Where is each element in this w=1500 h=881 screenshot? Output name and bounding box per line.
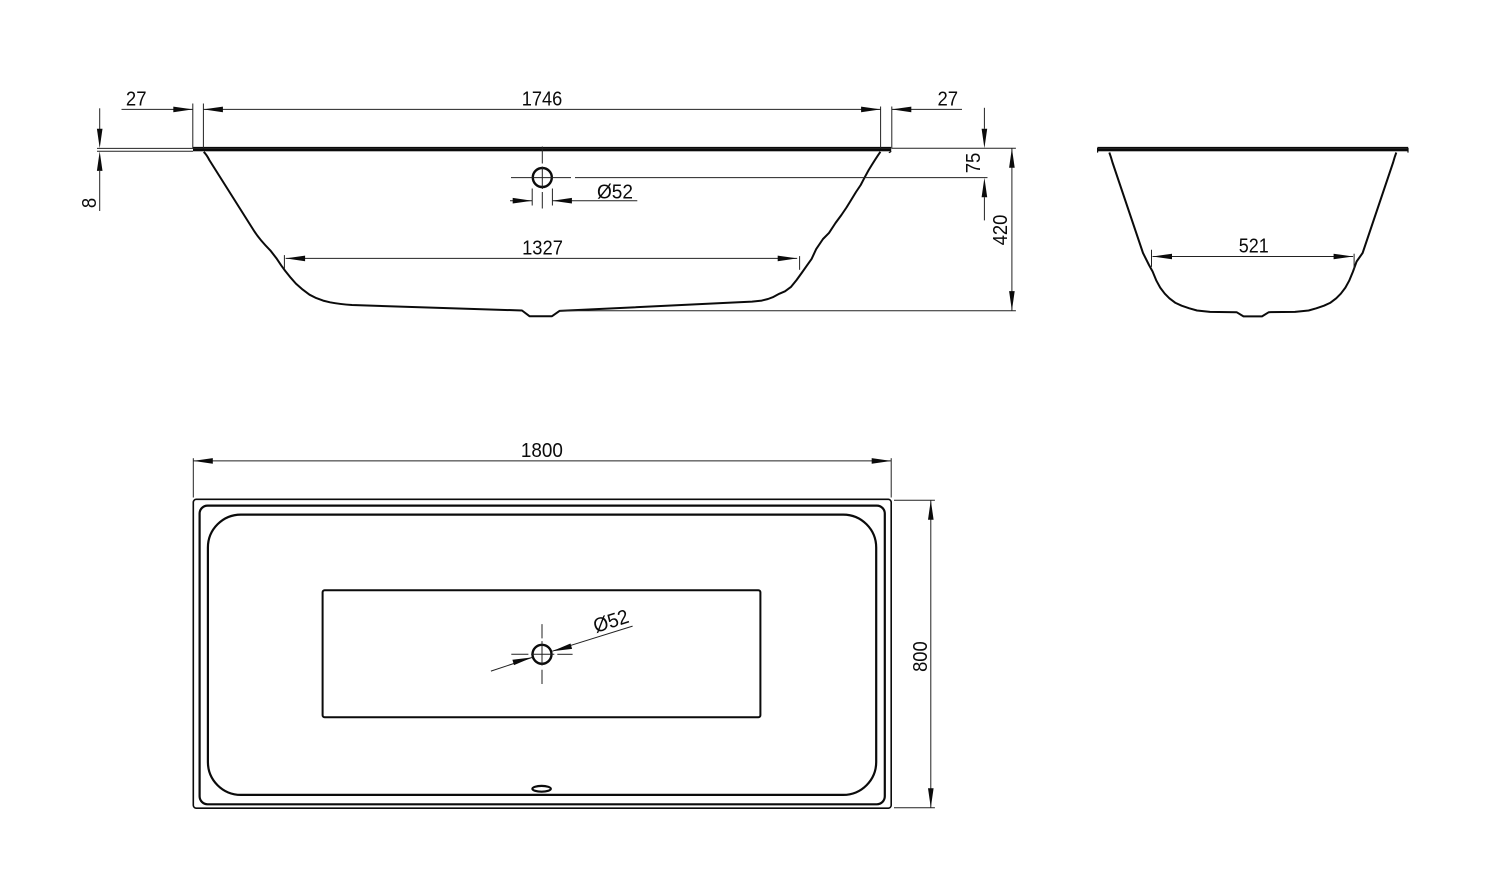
svg-text:75: 75 (963, 153, 985, 174)
svg-text:800: 800 (910, 641, 932, 672)
svg-text:521: 521 (1239, 235, 1269, 257)
svg-text:1327: 1327 (522, 237, 563, 259)
svg-text:1746: 1746 (522, 88, 563, 110)
svg-text:1800: 1800 (521, 440, 563, 462)
svg-text:8: 8 (79, 198, 101, 208)
svg-text:Ø52: Ø52 (597, 182, 633, 204)
svg-text:27: 27 (938, 88, 959, 110)
svg-text:27: 27 (126, 89, 147, 111)
svg-text:420: 420 (990, 215, 1012, 246)
